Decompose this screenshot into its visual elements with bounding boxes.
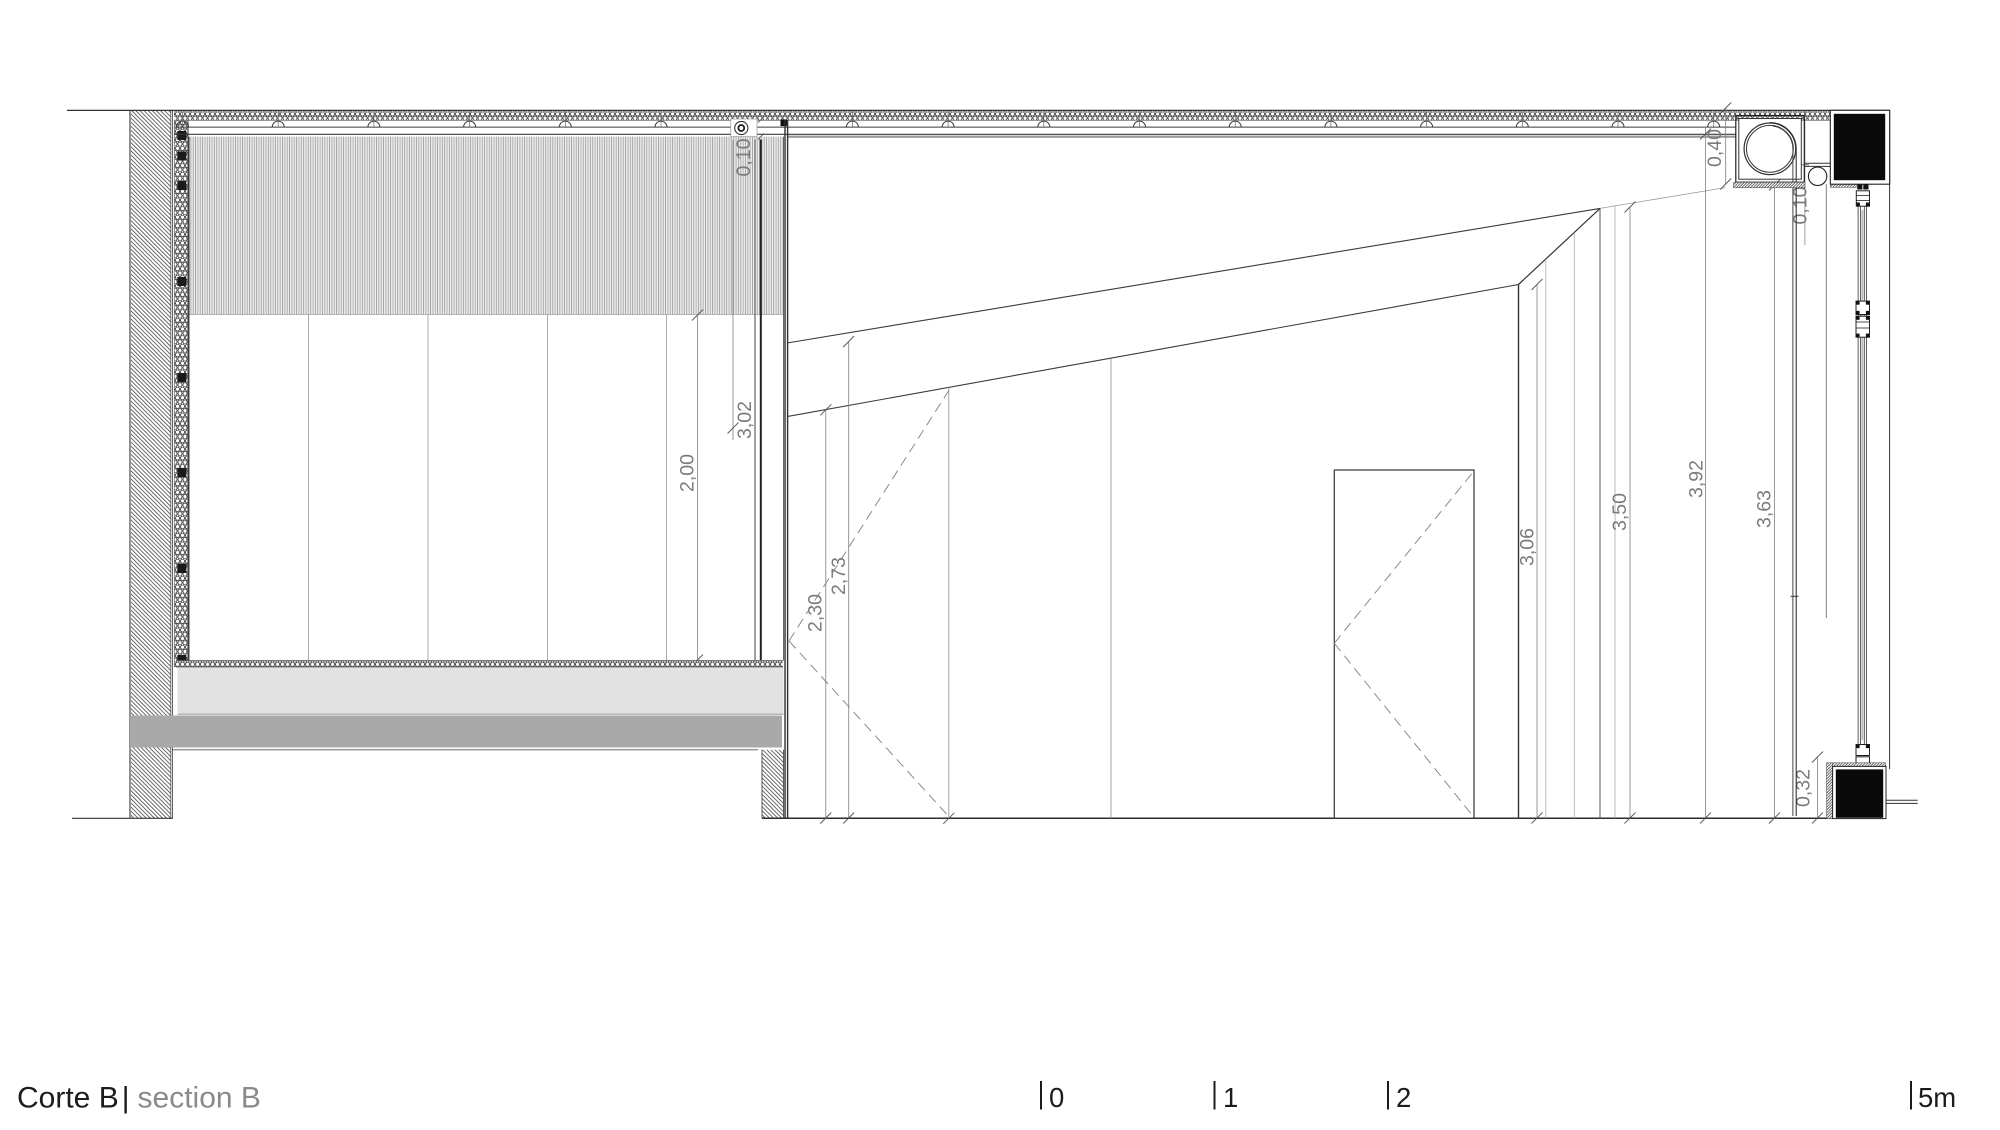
svg-text:2,73: 2,73	[828, 557, 850, 595]
svg-text:3,06: 3,06	[1517, 528, 1539, 566]
svg-text:3,63: 3,63	[1754, 490, 1776, 528]
svg-text:0,10: 0,10	[733, 138, 755, 176]
svg-text:0,40: 0,40	[1704, 129, 1726, 167]
svg-text:2,00: 2,00	[677, 454, 699, 492]
svg-text:3,92: 3,92	[1686, 460, 1708, 498]
svg-text:3,02: 3,02	[734, 401, 756, 439]
svg-text:2: 2	[1396, 1082, 1411, 1113]
svg-text:0: 0	[1049, 1082, 1064, 1113]
svg-text:1: 1	[1223, 1082, 1238, 1113]
svg-text:Corte B|section B: Corte B|section B	[17, 1082, 261, 1115]
svg-text:2,30: 2,30	[805, 594, 827, 632]
svg-text:5m: 5m	[1918, 1082, 1956, 1113]
svg-text:3,50: 3,50	[1609, 493, 1631, 531]
